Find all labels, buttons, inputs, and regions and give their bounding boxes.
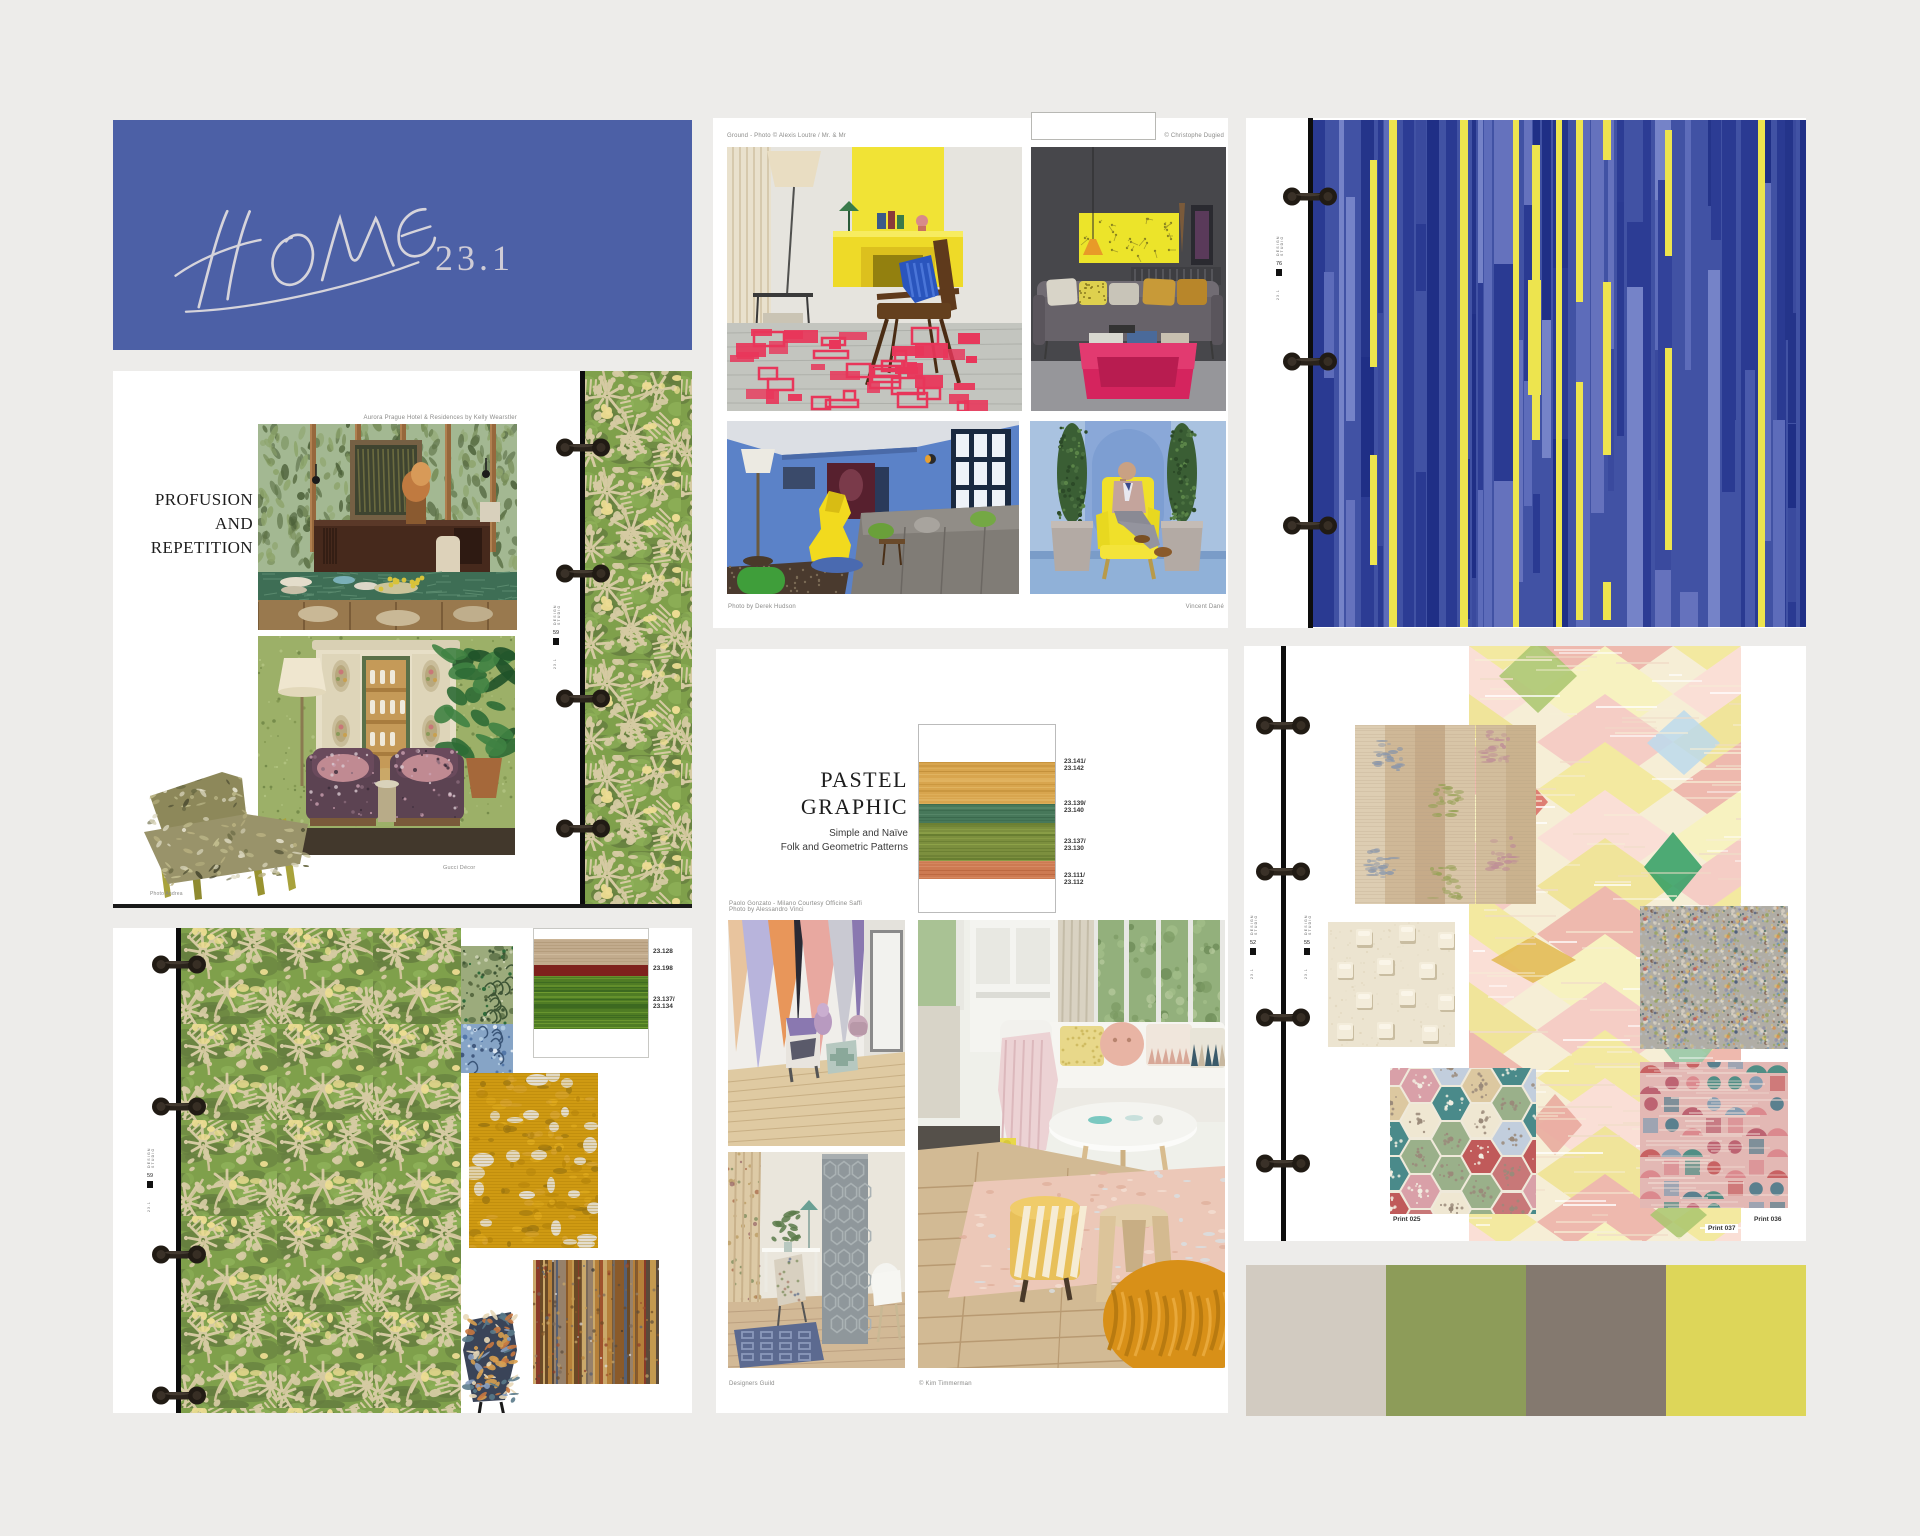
svg-text:23.1: 23.1 (435, 238, 514, 278)
